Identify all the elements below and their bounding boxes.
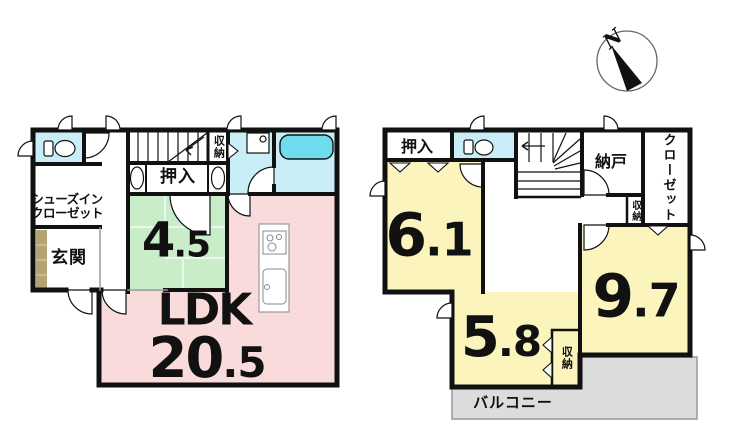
- stairs-1f: [138, 131, 207, 162]
- room-61-size: 6.1: [385, 202, 472, 271]
- nando-label: 納戸: [595, 153, 627, 171]
- ldk-size: 20.5: [148, 327, 265, 391]
- tatami-room-size: 4.5: [142, 213, 210, 268]
- room-58-size: 5.8: [461, 306, 541, 370]
- oval-fixture-right: [212, 167, 225, 189]
- genkan-step: [36, 230, 47, 288]
- entrance-door-left: [68, 290, 92, 314]
- kitchen-counter: [259, 224, 289, 312]
- sink-icon: [263, 269, 286, 304]
- oshiire-1f-label: 押入: [160, 168, 196, 188]
- storage-2f-small-label: 収納: [629, 200, 641, 222]
- washbasin-icon: [247, 133, 269, 153]
- balcony-label: バルコニー: [473, 394, 553, 411]
- oshiire-2f-label: 押入: [401, 138, 433, 156]
- wardrobe-label: クローゼット: [660, 133, 675, 223]
- room-97-size: 9.7: [592, 263, 679, 332]
- storage-1f-label: 収納: [212, 135, 225, 159]
- stairs-2f: [516, 133, 580, 189]
- nando-door: [584, 170, 609, 195]
- entrance-label: 玄関: [51, 249, 87, 269]
- toilet-icon-2f: [464, 140, 493, 155]
- room-fills: [33, 130, 690, 387]
- shoe-closet-label: シューズイン クローゼット: [31, 193, 103, 222]
- bathtub-icon: [280, 135, 333, 159]
- toilet-icon-1f: [44, 141, 75, 157]
- floor-plan-canvas: シューズイン クローゼット 玄関 押入 収納 4.5 LDK 20.5 押入 納…: [0, 0, 740, 440]
- oval-fixture-left: [131, 167, 144, 189]
- storage-58-label: 収納: [560, 346, 573, 370]
- toilet-1f-door: [84, 133, 109, 158]
